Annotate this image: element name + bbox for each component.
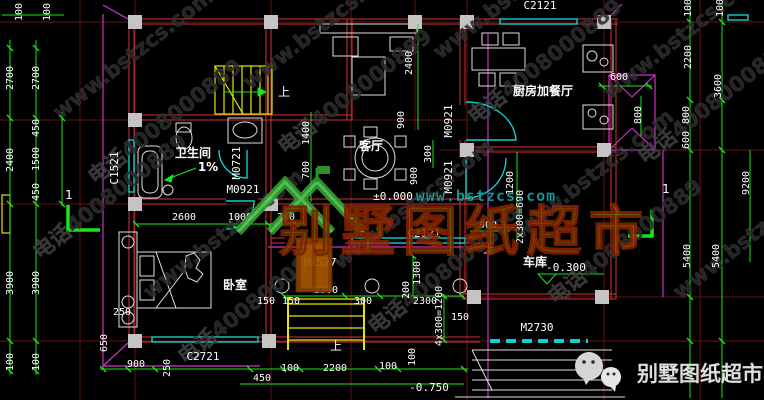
tags_v-label: M0721 — [230, 146, 243, 179]
dims_h-label: 100 — [281, 363, 299, 374]
dims_v-label: 250 — [162, 359, 173, 377]
dims_v-label: 4x300=1200 — [434, 286, 445, 346]
dims_h-label: 450 — [253, 373, 271, 384]
dims_h-label: 300 — [354, 296, 372, 307]
dims_v-label: 100 — [5, 353, 16, 371]
brand-url-text: www.bstzcs.com — [416, 187, 556, 205]
rooms-label: 客厅 — [358, 138, 383, 153]
floor-plan-canvas: www.bstzcs.com电话4008000889www.bstzcs.com… — [0, 0, 764, 400]
dims_v-label: 800 — [681, 106, 692, 124]
dims_v-label: 100 — [14, 3, 25, 21]
dims_v-label: 100 — [715, 0, 726, 17]
dims_v-label: 1300 — [412, 261, 423, 285]
dims_v-label: 100 — [683, 0, 694, 17]
brand-title-text: 别墅图纸超市 — [279, 200, 651, 263]
dims_h-label: 2200 — [323, 363, 347, 374]
dims_v-label: 100 — [407, 348, 418, 366]
dims_v-label: 2700 — [31, 66, 42, 90]
rooms-label: 厨房加餐厅 — [513, 83, 573, 98]
dims_h-label: 150 — [282, 296, 300, 307]
dims_v-label: 900 — [396, 111, 407, 129]
marks-label: 1 — [662, 182, 670, 196]
rooms-label: 卫生间 — [175, 145, 211, 160]
dims_v-label: 2700 — [5, 66, 16, 90]
tags_v-label: M0921 — [442, 104, 455, 137]
dims_v-label: 5400 — [711, 244, 722, 268]
dims_h-label: 2600 — [172, 212, 196, 223]
dims_h-label: 150 — [257, 296, 275, 307]
footer-brand-text: 别墅图纸超市 — [636, 362, 763, 386]
dims_v-label: 600 — [681, 131, 692, 149]
dims_v-label: 3900 — [31, 271, 42, 295]
tags_h-label: M2730 — [520, 321, 553, 334]
rooms-label: 1% — [198, 160, 218, 174]
dims_v-label: 800 — [633, 106, 644, 124]
dims_h-label: 600 — [610, 72, 628, 83]
dims_v-label: 300 — [423, 145, 434, 163]
marks-label: 上 — [330, 339, 342, 353]
dims_h-label: 900 — [127, 359, 145, 370]
dims_h-label: 150 — [451, 312, 469, 323]
dims_v-label: 450 — [31, 119, 42, 137]
dims_v-label: 450 — [31, 183, 42, 201]
dims_v-label: 3600 — [713, 74, 724, 98]
rooms-label: 卧室 — [223, 277, 247, 292]
dims_v-label: 1400 — [301, 121, 312, 145]
marks-label: 1 — [65, 188, 73, 202]
tags_h-label: C2121 — [523, 0, 556, 12]
dims_v-label: 700 — [301, 161, 312, 179]
dims_v-label: 5400 — [682, 244, 693, 268]
dims_v-label: 2400 — [5, 148, 16, 172]
dims_v-label: 900 — [409, 167, 420, 185]
tags_h-label: M0921 — [226, 183, 259, 196]
dims_v-label: 2400 — [404, 51, 415, 75]
dims_h-label: 250 — [113, 307, 131, 318]
dims_v-label: 2200 — [683, 45, 694, 69]
cad-floor-plan-viewport: www.bstzcs.com电话4008000889www.bstzcs.com… — [0, 0, 764, 400]
levels-label: -0.750 — [409, 381, 449, 394]
tags_v-label: C1521 — [108, 151, 121, 184]
dims_v-label: 100 — [31, 353, 42, 371]
dims_v-label: 9200 — [741, 171, 752, 195]
dims_h-label: 100 — [379, 361, 397, 372]
dims_v-label: 200 — [401, 281, 412, 299]
dims_v-label: 650 — [99, 334, 110, 352]
tags_h-label: C2721 — [186, 350, 219, 363]
dims_v-label: 1500 — [31, 147, 42, 171]
dims_v-label: 3900 — [5, 271, 16, 295]
dims_v-label: 100 — [42, 3, 53, 21]
marks-label: 上 — [278, 85, 290, 99]
